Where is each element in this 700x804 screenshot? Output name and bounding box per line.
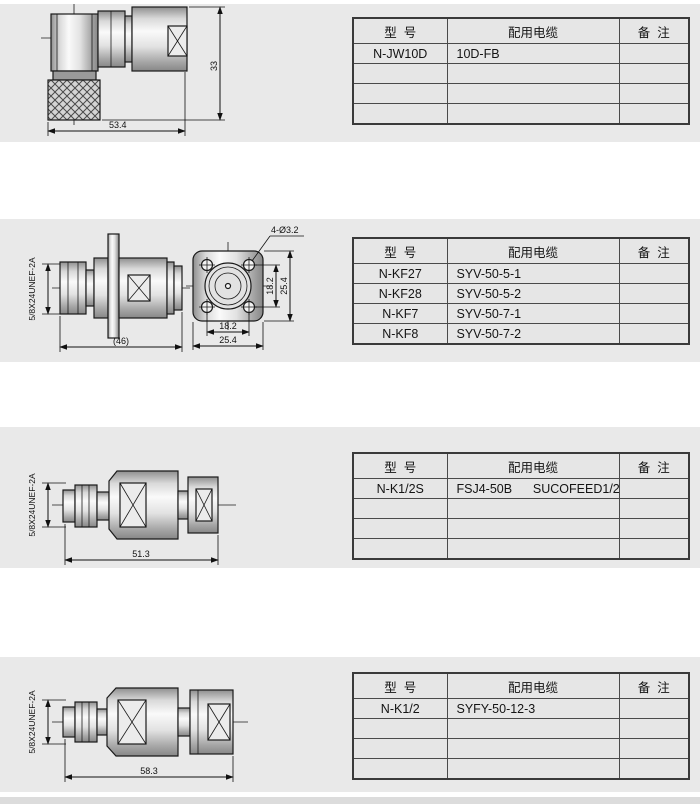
cell-model xyxy=(353,759,447,780)
drawing-straight-connector-2: 5/8X24UNEF-2A 58.3 xyxy=(8,658,268,792)
cell-remark xyxy=(619,759,689,780)
cell-remark xyxy=(619,479,689,499)
table-row xyxy=(353,499,689,519)
drawing-straight-connector-1: 5/8X24UNEF-2A 51.3 xyxy=(8,443,258,571)
cell-model: N-JW10D xyxy=(353,44,447,64)
dim-length-4: 58.3 xyxy=(140,766,158,776)
cell-remark xyxy=(619,499,689,519)
dim-height-1: 33 xyxy=(209,61,219,71)
table-row: N-KF28 SYV-50-5-2 xyxy=(353,284,689,304)
spec-table-3: 型 号 配用电缆 备 注 N-K1/2S FSJ4-50B SUCOFEED1/… xyxy=(352,452,690,560)
table-row: N-KF8 SYV-50-7-2 xyxy=(353,324,689,345)
table-row xyxy=(353,84,689,104)
spec-table-4: 型 号 配用电缆 备 注 N-K1/2 SYFY-50-12-3 xyxy=(352,672,690,780)
cell-model xyxy=(353,104,447,125)
header-remark: 备 注 xyxy=(619,18,689,44)
cell-model: N-KF7 xyxy=(353,304,447,324)
spec-table-2: 型 号 配用电缆 备 注 N-KF27 SYV-50-5-1 N-KF28 SY… xyxy=(352,237,690,345)
thread-label: 5/8X24UNEF-2A xyxy=(27,690,37,754)
cell-cable xyxy=(447,64,619,84)
cell-model: N-K1/2 xyxy=(353,699,447,719)
header-remark: 备 注 xyxy=(619,453,689,479)
cell-remark xyxy=(619,64,689,84)
cell-remark xyxy=(619,104,689,125)
cell-model: N-KF27 xyxy=(353,264,447,284)
cell-remark xyxy=(619,519,689,539)
cell-model xyxy=(353,719,447,739)
header-cable: 配用电缆 xyxy=(447,673,619,699)
table-row: N-KF7 SYV-50-7-1 xyxy=(353,304,689,324)
cell-model: N-K1/2S xyxy=(353,479,447,499)
table-row xyxy=(353,759,689,780)
table-row xyxy=(353,104,689,125)
dim-length-3: 51.3 xyxy=(132,549,150,559)
header-model: 型 号 xyxy=(353,673,447,699)
header-model: 型 号 xyxy=(353,453,447,479)
dim-length-1: 53.4 xyxy=(109,120,127,130)
table-header-row: 型 号 配用电缆 备 注 xyxy=(353,453,689,479)
cell-model xyxy=(353,539,447,560)
cell-model xyxy=(353,499,447,519)
cell-cable xyxy=(447,539,619,560)
cell-remark xyxy=(619,719,689,739)
drawing-right-angle-connector: 53.4 33 xyxy=(15,4,230,140)
cell-remark xyxy=(619,539,689,560)
cell-remark xyxy=(619,264,689,284)
table-row xyxy=(353,519,689,539)
cell-cable xyxy=(447,739,619,759)
table-header-row: 型 号 配用电缆 备 注 xyxy=(353,238,689,264)
cell-remark xyxy=(619,324,689,345)
cell-cable: SYV-50-5-1 xyxy=(447,264,619,284)
table-row: N-JW10D 10D-FB xyxy=(353,44,689,64)
dim-pitch-h: 18.2 xyxy=(219,321,237,331)
table-row: N-K1/2 SYFY-50-12-3 xyxy=(353,699,689,719)
drawing-flange-mount-connector: 5/8X24UNEF-2A (46) xyxy=(8,220,343,362)
cell-cable: SYV-50-7-1 xyxy=(447,304,619,324)
cell-model xyxy=(353,739,447,759)
cell-remark xyxy=(619,84,689,104)
thread-label: 5/8X24UNEF-2A xyxy=(27,473,37,537)
cell-model xyxy=(353,84,447,104)
cell-cable: SYFY-50-12-3 xyxy=(447,699,619,719)
cell-remark xyxy=(619,284,689,304)
cell-remark xyxy=(619,304,689,324)
cell-cable: SYV-50-7-2 xyxy=(447,324,619,345)
cell-cable xyxy=(447,719,619,739)
thread-label: 5/8X24UNEF-2A xyxy=(27,257,37,321)
cell-model xyxy=(353,519,447,539)
cell-cable: 10D-FB xyxy=(447,44,619,64)
cell-cable xyxy=(447,519,619,539)
dim-size-v: 25.4 xyxy=(279,277,289,295)
dim-size-h: 25.4 xyxy=(219,335,237,345)
cell-model: N-KF28 xyxy=(353,284,447,304)
header-remark: 备 注 xyxy=(619,238,689,264)
table-row xyxy=(353,64,689,84)
dim-holes: 4-Ø3.2 xyxy=(271,225,299,235)
table-header-row: 型 号 配用电缆 备 注 xyxy=(353,18,689,44)
header-model: 型 号 xyxy=(353,238,447,264)
cell-remark xyxy=(619,739,689,759)
cell-cable xyxy=(447,759,619,780)
cell-remark xyxy=(619,44,689,64)
table-row xyxy=(353,539,689,560)
spec-table-1: 型 号 配用电缆 备 注 N-JW10D 10D-FB xyxy=(352,17,690,125)
cell-cable xyxy=(447,499,619,519)
header-cable: 配用电缆 xyxy=(447,238,619,264)
cell-remark xyxy=(619,699,689,719)
cell-cable xyxy=(447,84,619,104)
cell-model xyxy=(353,64,447,84)
dim-length-2: (46) xyxy=(113,336,129,346)
cell-cable xyxy=(447,104,619,125)
header-model: 型 号 xyxy=(353,18,447,44)
cell-cable: SYV-50-5-2 xyxy=(447,284,619,304)
cell-model: N-KF8 xyxy=(353,324,447,345)
header-cable: 配用电缆 xyxy=(447,453,619,479)
table-row: N-KF27 SYV-50-5-1 xyxy=(353,264,689,284)
table-row xyxy=(353,719,689,739)
table-row: N-K1/2S FSJ4-50B SUCOFEED1/2 xyxy=(353,479,689,499)
bottom-strip xyxy=(0,797,700,804)
table-header-row: 型 号 配用电缆 备 注 xyxy=(353,673,689,699)
header-cable: 配用电缆 xyxy=(447,18,619,44)
table-row xyxy=(353,739,689,759)
dim-pitch-v: 18.2 xyxy=(265,277,275,295)
header-remark: 备 注 xyxy=(619,673,689,699)
cell-cable: FSJ4-50B SUCOFEED1/2 xyxy=(447,479,619,499)
